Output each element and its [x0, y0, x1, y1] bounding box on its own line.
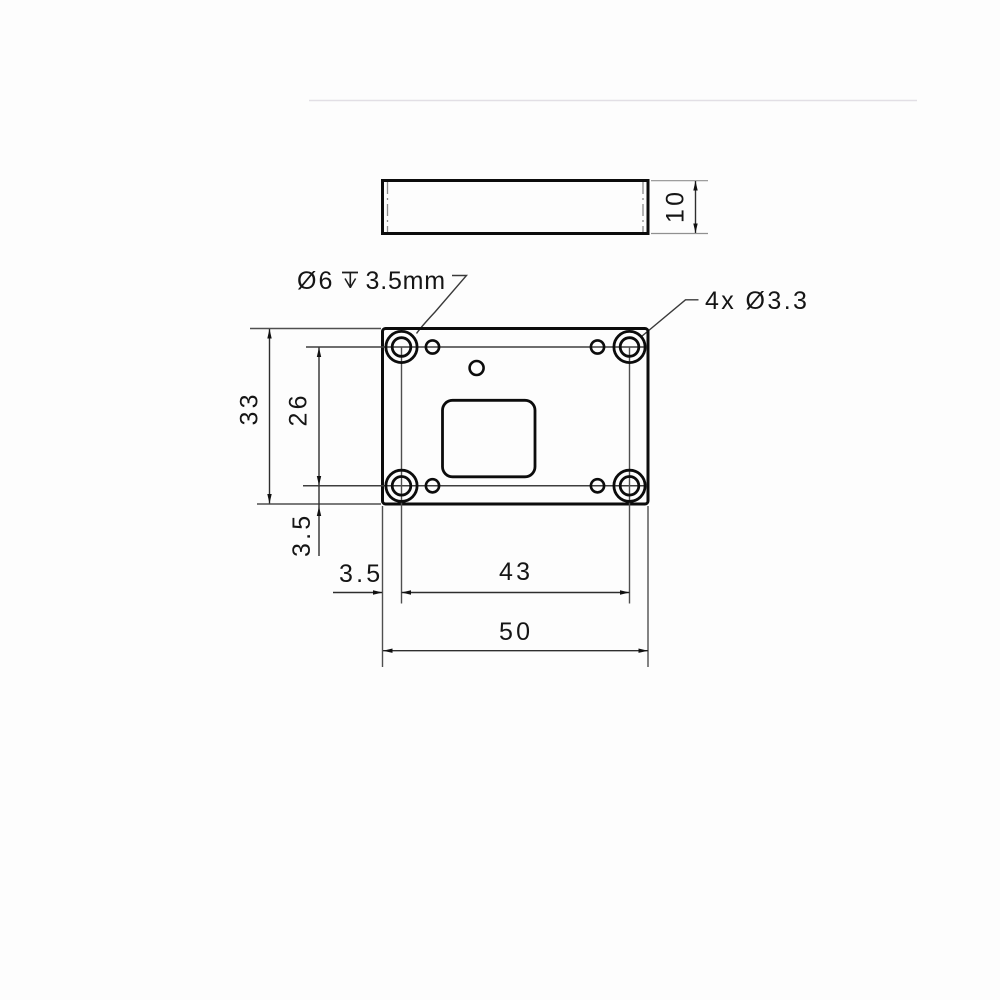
- svg-text:33: 33: [236, 391, 264, 425]
- svg-text:43: 43: [499, 558, 533, 586]
- svg-text:4x Ø3.3: 4x Ø3.3: [705, 287, 809, 315]
- svg-text:3.5: 3.5: [339, 560, 383, 588]
- svg-text:3.5: 3.5: [288, 513, 316, 557]
- svg-text:3.5mm: 3.5mm: [366, 267, 446, 295]
- svg-text:50: 50: [499, 618, 533, 646]
- svg-text:Ø6: Ø6: [297, 267, 334, 295]
- svg-text:10: 10: [662, 189, 690, 223]
- svg-text:26: 26: [285, 392, 313, 426]
